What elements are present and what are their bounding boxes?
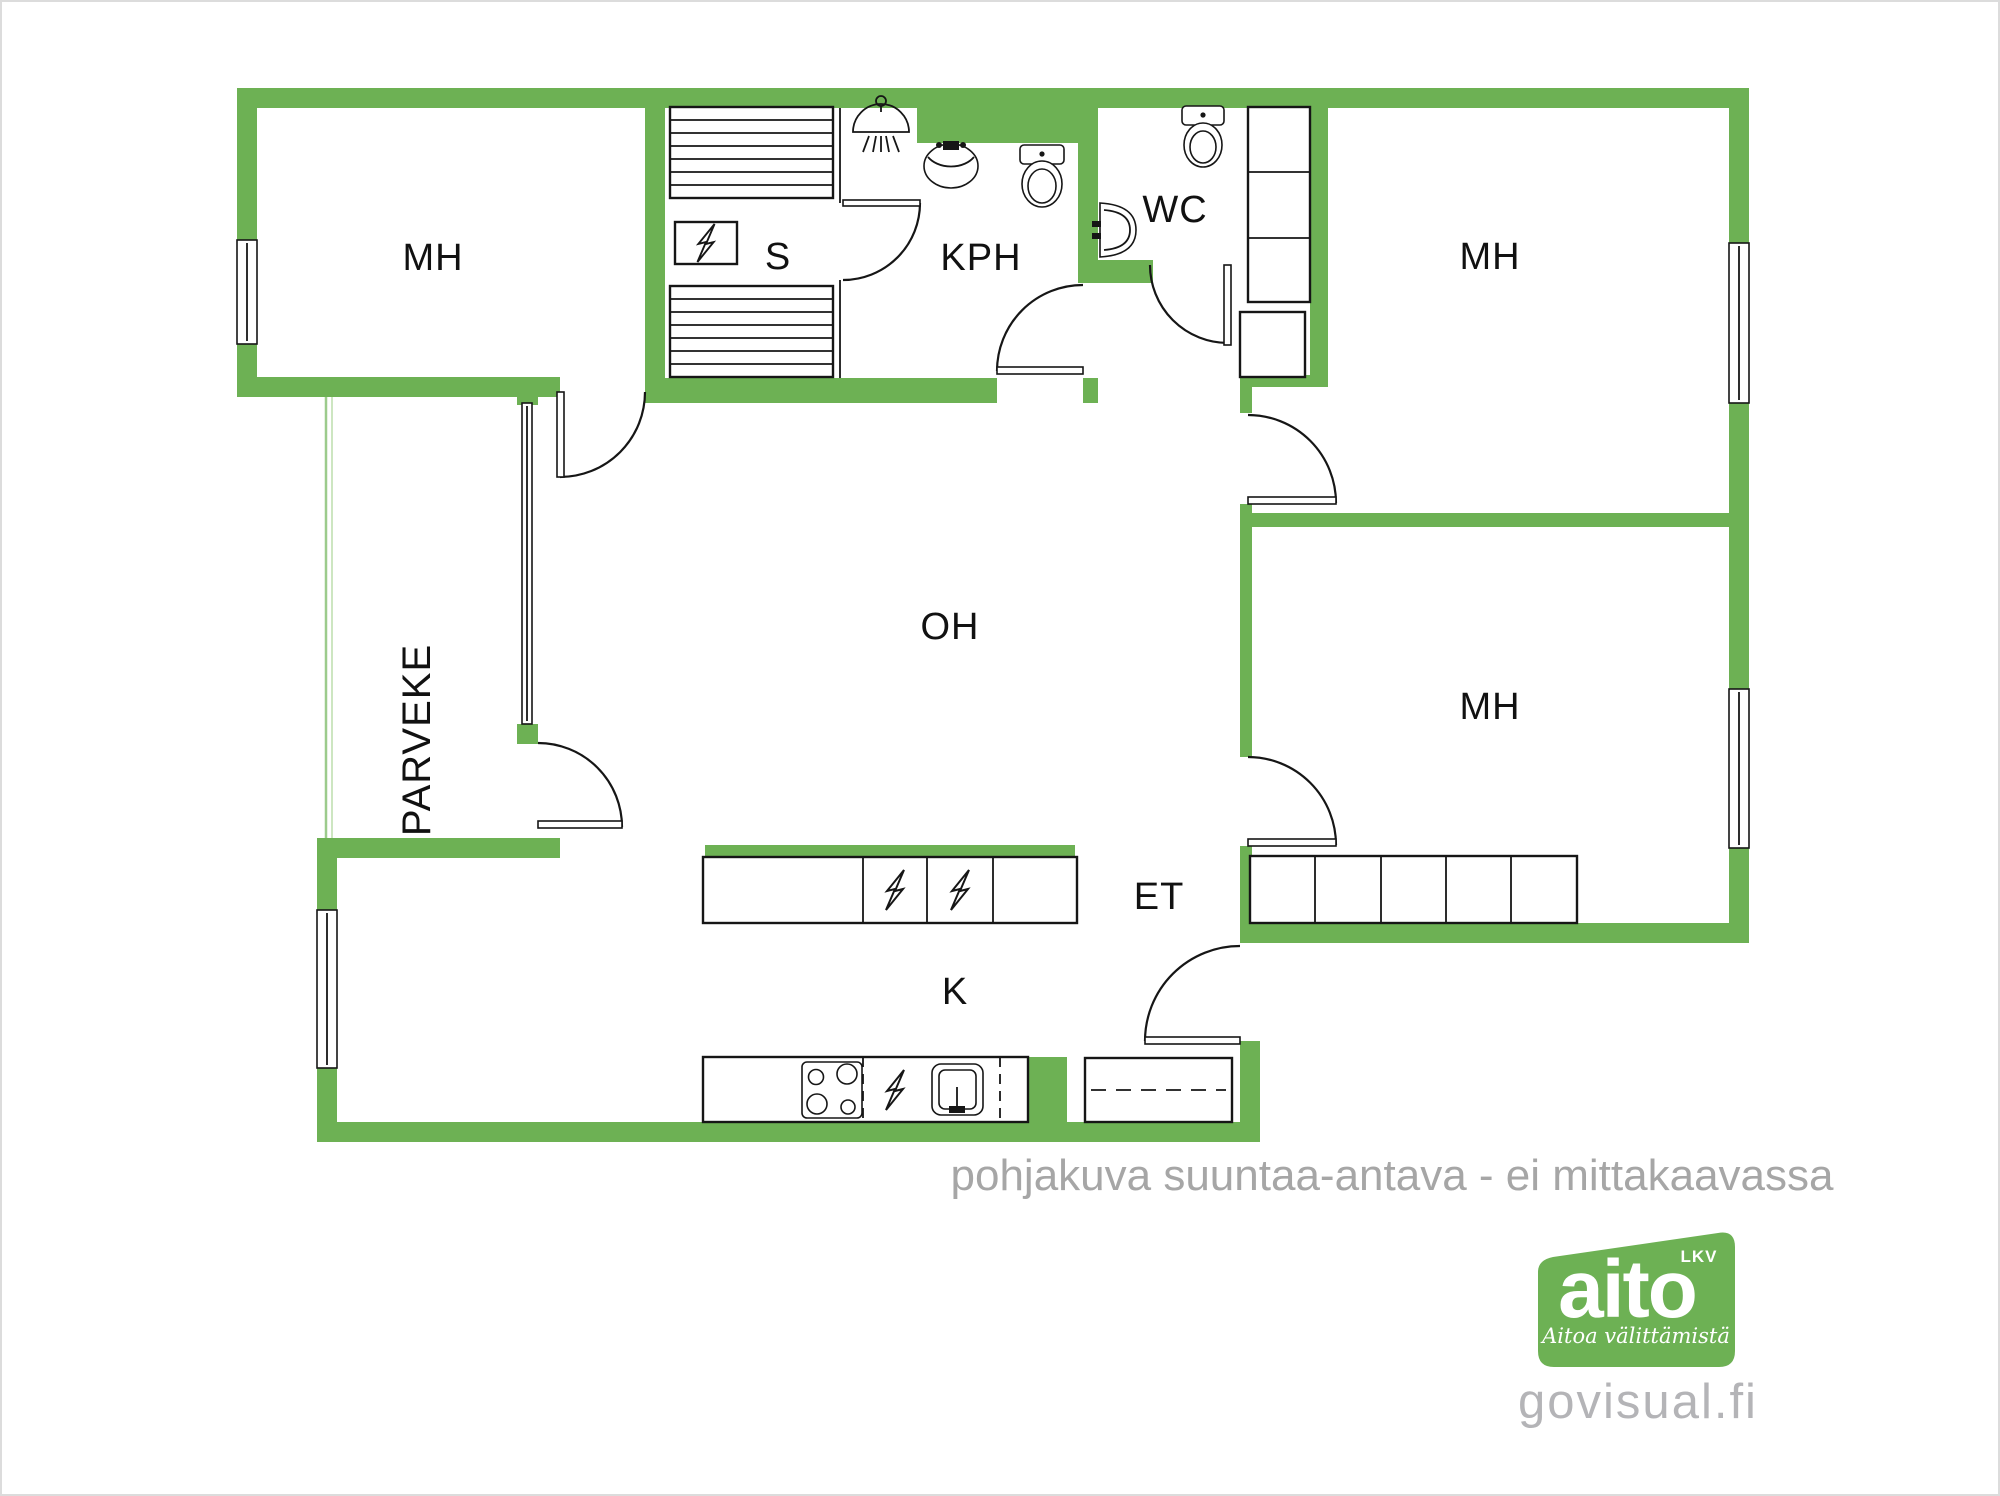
room-label-oh: OH — [921, 606, 980, 648]
room-label-mh-top-right: MH — [1459, 236, 1520, 278]
duct-shaft-icon — [1240, 312, 1305, 377]
room-label-et: ET — [1134, 876, 1185, 918]
floor-plan-canvas: MH S KPH WC MH MH OH ET K PARVEKE pohjak… — [0, 0, 2000, 1496]
wall-balcony-bottom — [317, 838, 560, 858]
wall-kitchen-divider — [705, 845, 1075, 856]
floor-plan-page: MH S KPH WC MH MH OH ET K PARVEKE pohjak… — [0, 0, 2000, 1496]
hallway-closet-icon — [1085, 1058, 1232, 1122]
wall-left-stub — [237, 344, 257, 397]
bedroom-closet-icon — [1250, 856, 1577, 923]
toilet-wc-icon — [1182, 106, 1224, 167]
wardrobe-icon — [1248, 107, 1310, 302]
wall-kph-duct-notch — [917, 88, 1080, 143]
aito-logo-tagline: Aitoa välittämistä — [1540, 1324, 1730, 1348]
sauna-stove-icon — [675, 222, 737, 264]
govisual-website-text: govisual.fi — [1518, 1375, 1758, 1429]
room-label-parveke: PARVEKE — [395, 644, 439, 836]
wall-mh-left-bottom — [257, 377, 560, 397]
sauna-bench-top-icon — [670, 107, 833, 198]
room-label-kitchen: K — [942, 971, 968, 1013]
aito-logo-lkv-text: LKV — [1681, 1247, 1718, 1266]
wall-kph-wc-divider — [1078, 108, 1098, 283]
wall-right-middle — [1729, 403, 1749, 689]
wall-lower-left-upper — [317, 858, 337, 910]
wall-bottom — [317, 1122, 1260, 1142]
room-label-mh-left: MH — [402, 237, 463, 279]
wall-sauna-left — [645, 108, 665, 403]
wall-left-upper — [237, 108, 257, 240]
wall-kph-bottom-stub — [1083, 378, 1098, 403]
wall-sauna-kph-bottom — [645, 378, 997, 403]
aito-logo-text: aito — [1558, 1244, 1696, 1335]
disclaimer-text: pohjakuva suuntaa-antava - ei mittakaava… — [951, 1151, 1834, 1200]
wall-mh-mid-left-upper — [1240, 527, 1252, 757]
room-label-kph: KPH — [940, 237, 1021, 279]
wall-kitchen-entry-column — [1028, 1057, 1067, 1122]
room-label-wc: WC — [1142, 189, 1207, 231]
wall-right-upper — [1729, 108, 1749, 243]
hob-icon — [802, 1062, 862, 1118]
kitchen-sink-icon — [932, 1064, 983, 1115]
sauna-bench-bottom-icon — [670, 286, 833, 377]
wall-wardrobe-right — [1310, 108, 1328, 387]
window-mh-left — [237, 240, 257, 344]
window-mh-top-right — [1729, 243, 1749, 403]
wall-entry-right — [1240, 1041, 1260, 1142]
wall-mh-divider — [1240, 513, 1749, 527]
wall-balcony-pillar — [517, 724, 538, 744]
kitchen-counter-lower-icon — [703, 1057, 1028, 1122]
window-lower-left — [317, 910, 337, 1068]
wall-hall-stub-a — [1240, 387, 1252, 413]
wall-right-lower — [1729, 848, 1749, 943]
room-label-mh-mid-right: MH — [1459, 686, 1520, 728]
wall-wc-bottom — [1080, 260, 1153, 283]
aito-logo: aito LKV Aitoa välittämistä — [1538, 1233, 1735, 1367]
kitchen-counter-upper-icon — [703, 857, 1077, 923]
room-label-sauna: S — [765, 236, 791, 278]
toilet-kph-icon — [1020, 145, 1064, 207]
window-balcony-glass-wall — [522, 403, 532, 724]
window-mh-mid-right — [1729, 689, 1749, 848]
wall-mh-mid-bottom — [1240, 923, 1749, 943]
